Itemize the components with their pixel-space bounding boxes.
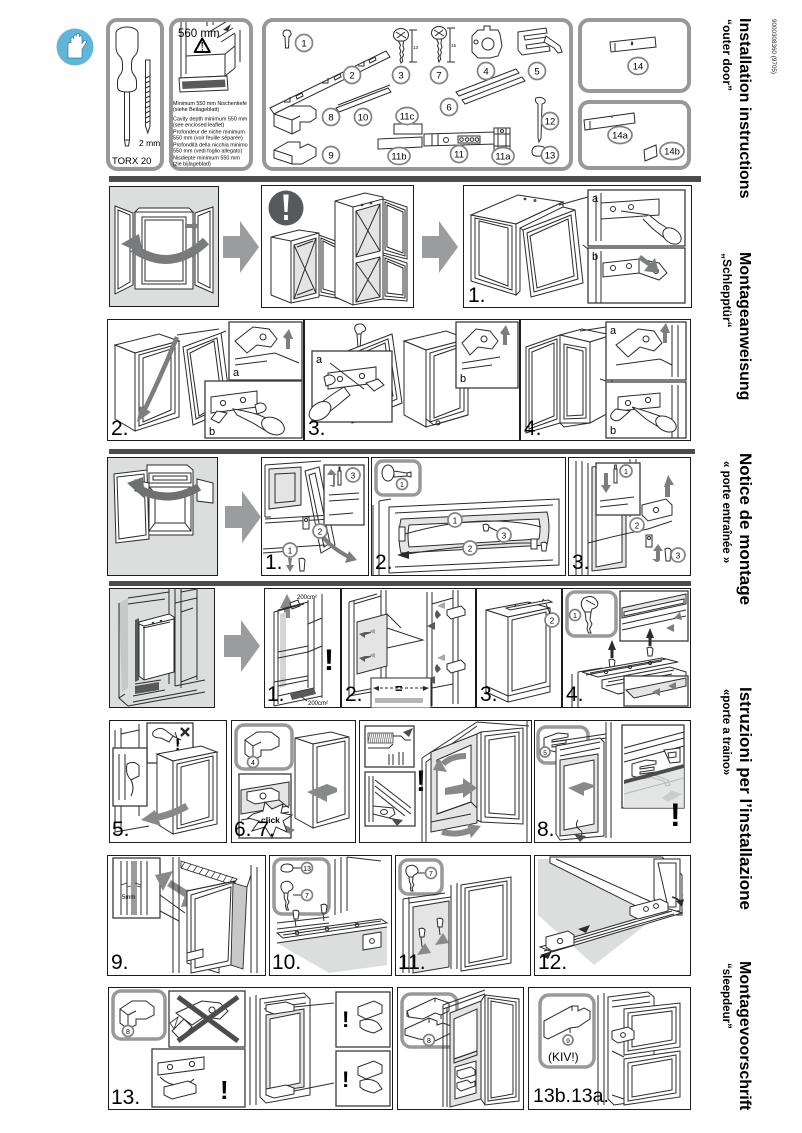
svg-text:!: ! [342, 1007, 349, 1032]
svg-text:7: 7 [436, 71, 441, 82]
svg-text:5: 5 [534, 67, 539, 78]
svg-text:4: 4 [251, 760, 255, 767]
svg-text:!: ! [670, 797, 681, 833]
svg-text:550 mm (vedi foglio allegato): 550 mm (vedi foglio allegato) [173, 149, 242, 155]
svg-text:=: = [395, 681, 403, 696]
svg-text:1: 1 [400, 482, 404, 489]
svg-text:8: 8 [126, 1029, 130, 1036]
svg-text:7: 7 [429, 871, 433, 878]
svg-text:14b: 14b [664, 147, 680, 158]
svg-text:1: 1 [624, 467, 628, 476]
svg-text:2: 2 [550, 617, 555, 626]
svg-text:a: a [316, 354, 323, 366]
svg-text:9: 9 [328, 151, 333, 162]
svg-text:TORX 20: TORX 20 [112, 156, 151, 167]
svg-text:2: 2 [635, 522, 640, 531]
svg-text:11a: 11a [495, 152, 511, 163]
svg-text:200cm²: 200cm² [308, 701, 328, 707]
svg-text:6: 6 [446, 103, 451, 114]
svg-text:3: 3 [676, 552, 681, 561]
svg-text:3: 3 [502, 532, 507, 541]
svg-text:1: 1 [573, 613, 577, 620]
svg-text:1: 1 [301, 39, 306, 50]
svg-text:b: b [460, 373, 466, 385]
svg-text:!: ! [220, 1075, 229, 1105]
svg-text:560 mm: 560 mm [178, 28, 220, 40]
svg-text:5: 5 [543, 750, 547, 757]
svg-text:b: b [592, 251, 598, 263]
svg-text:a: a [233, 367, 240, 379]
svg-text:11c: 11c [400, 112, 415, 123]
svg-text:11: 11 [454, 150, 464, 161]
svg-text:1: 1 [453, 517, 458, 526]
svg-text:8: 8 [328, 113, 333, 124]
svg-text:12: 12 [545, 117, 556, 128]
svg-text:3: 3 [351, 472, 356, 481]
svg-text:14: 14 [633, 62, 644, 73]
svg-text:13: 13 [545, 151, 556, 162]
svg-text:3: 3 [398, 71, 403, 82]
svg-text:!: ! [324, 644, 334, 677]
svg-text:2: 2 [468, 545, 473, 554]
svg-text:!: ! [342, 1067, 349, 1092]
svg-text:11b: 11b [391, 152, 406, 163]
svg-text:7: 7 [305, 893, 309, 900]
svg-text:b: b [209, 426, 215, 438]
svg-text:(zie bijlageblad): (zie bijlageblad) [173, 162, 211, 168]
svg-text:(see enclosed leaflet): (see enclosed leaflet) [173, 123, 224, 129]
svg-text:(KIV!): (KIV!) [548, 1050, 579, 1064]
svg-text:b: b [610, 425, 616, 437]
svg-text:a: a [610, 325, 617, 337]
svg-text:1: 1 [288, 547, 293, 556]
svg-text:9: 9 [566, 1038, 570, 1045]
svg-text:(siehe Beilageblatt): (siehe Beilageblatt) [173, 107, 219, 113]
svg-text:8: 8 [427, 1038, 431, 1045]
svg-text:!: ! [416, 765, 426, 798]
svg-text:2: 2 [318, 528, 323, 537]
svg-text:14a: 14a [612, 131, 629, 142]
svg-text:5mm: 5mm [122, 895, 135, 901]
svg-text:550 mm (voir feuille séparée): 550 mm (voir feuille séparée) [173, 136, 243, 142]
svg-text:4: 4 [483, 67, 488, 78]
svg-text:2 mm: 2 mm [139, 138, 160, 148]
svg-text:15: 15 [451, 43, 457, 48]
svg-text:10: 10 [358, 113, 369, 124]
svg-text:13: 13 [303, 866, 311, 873]
svg-text:2: 2 [349, 71, 354, 82]
svg-text:13: 13 [413, 45, 419, 50]
